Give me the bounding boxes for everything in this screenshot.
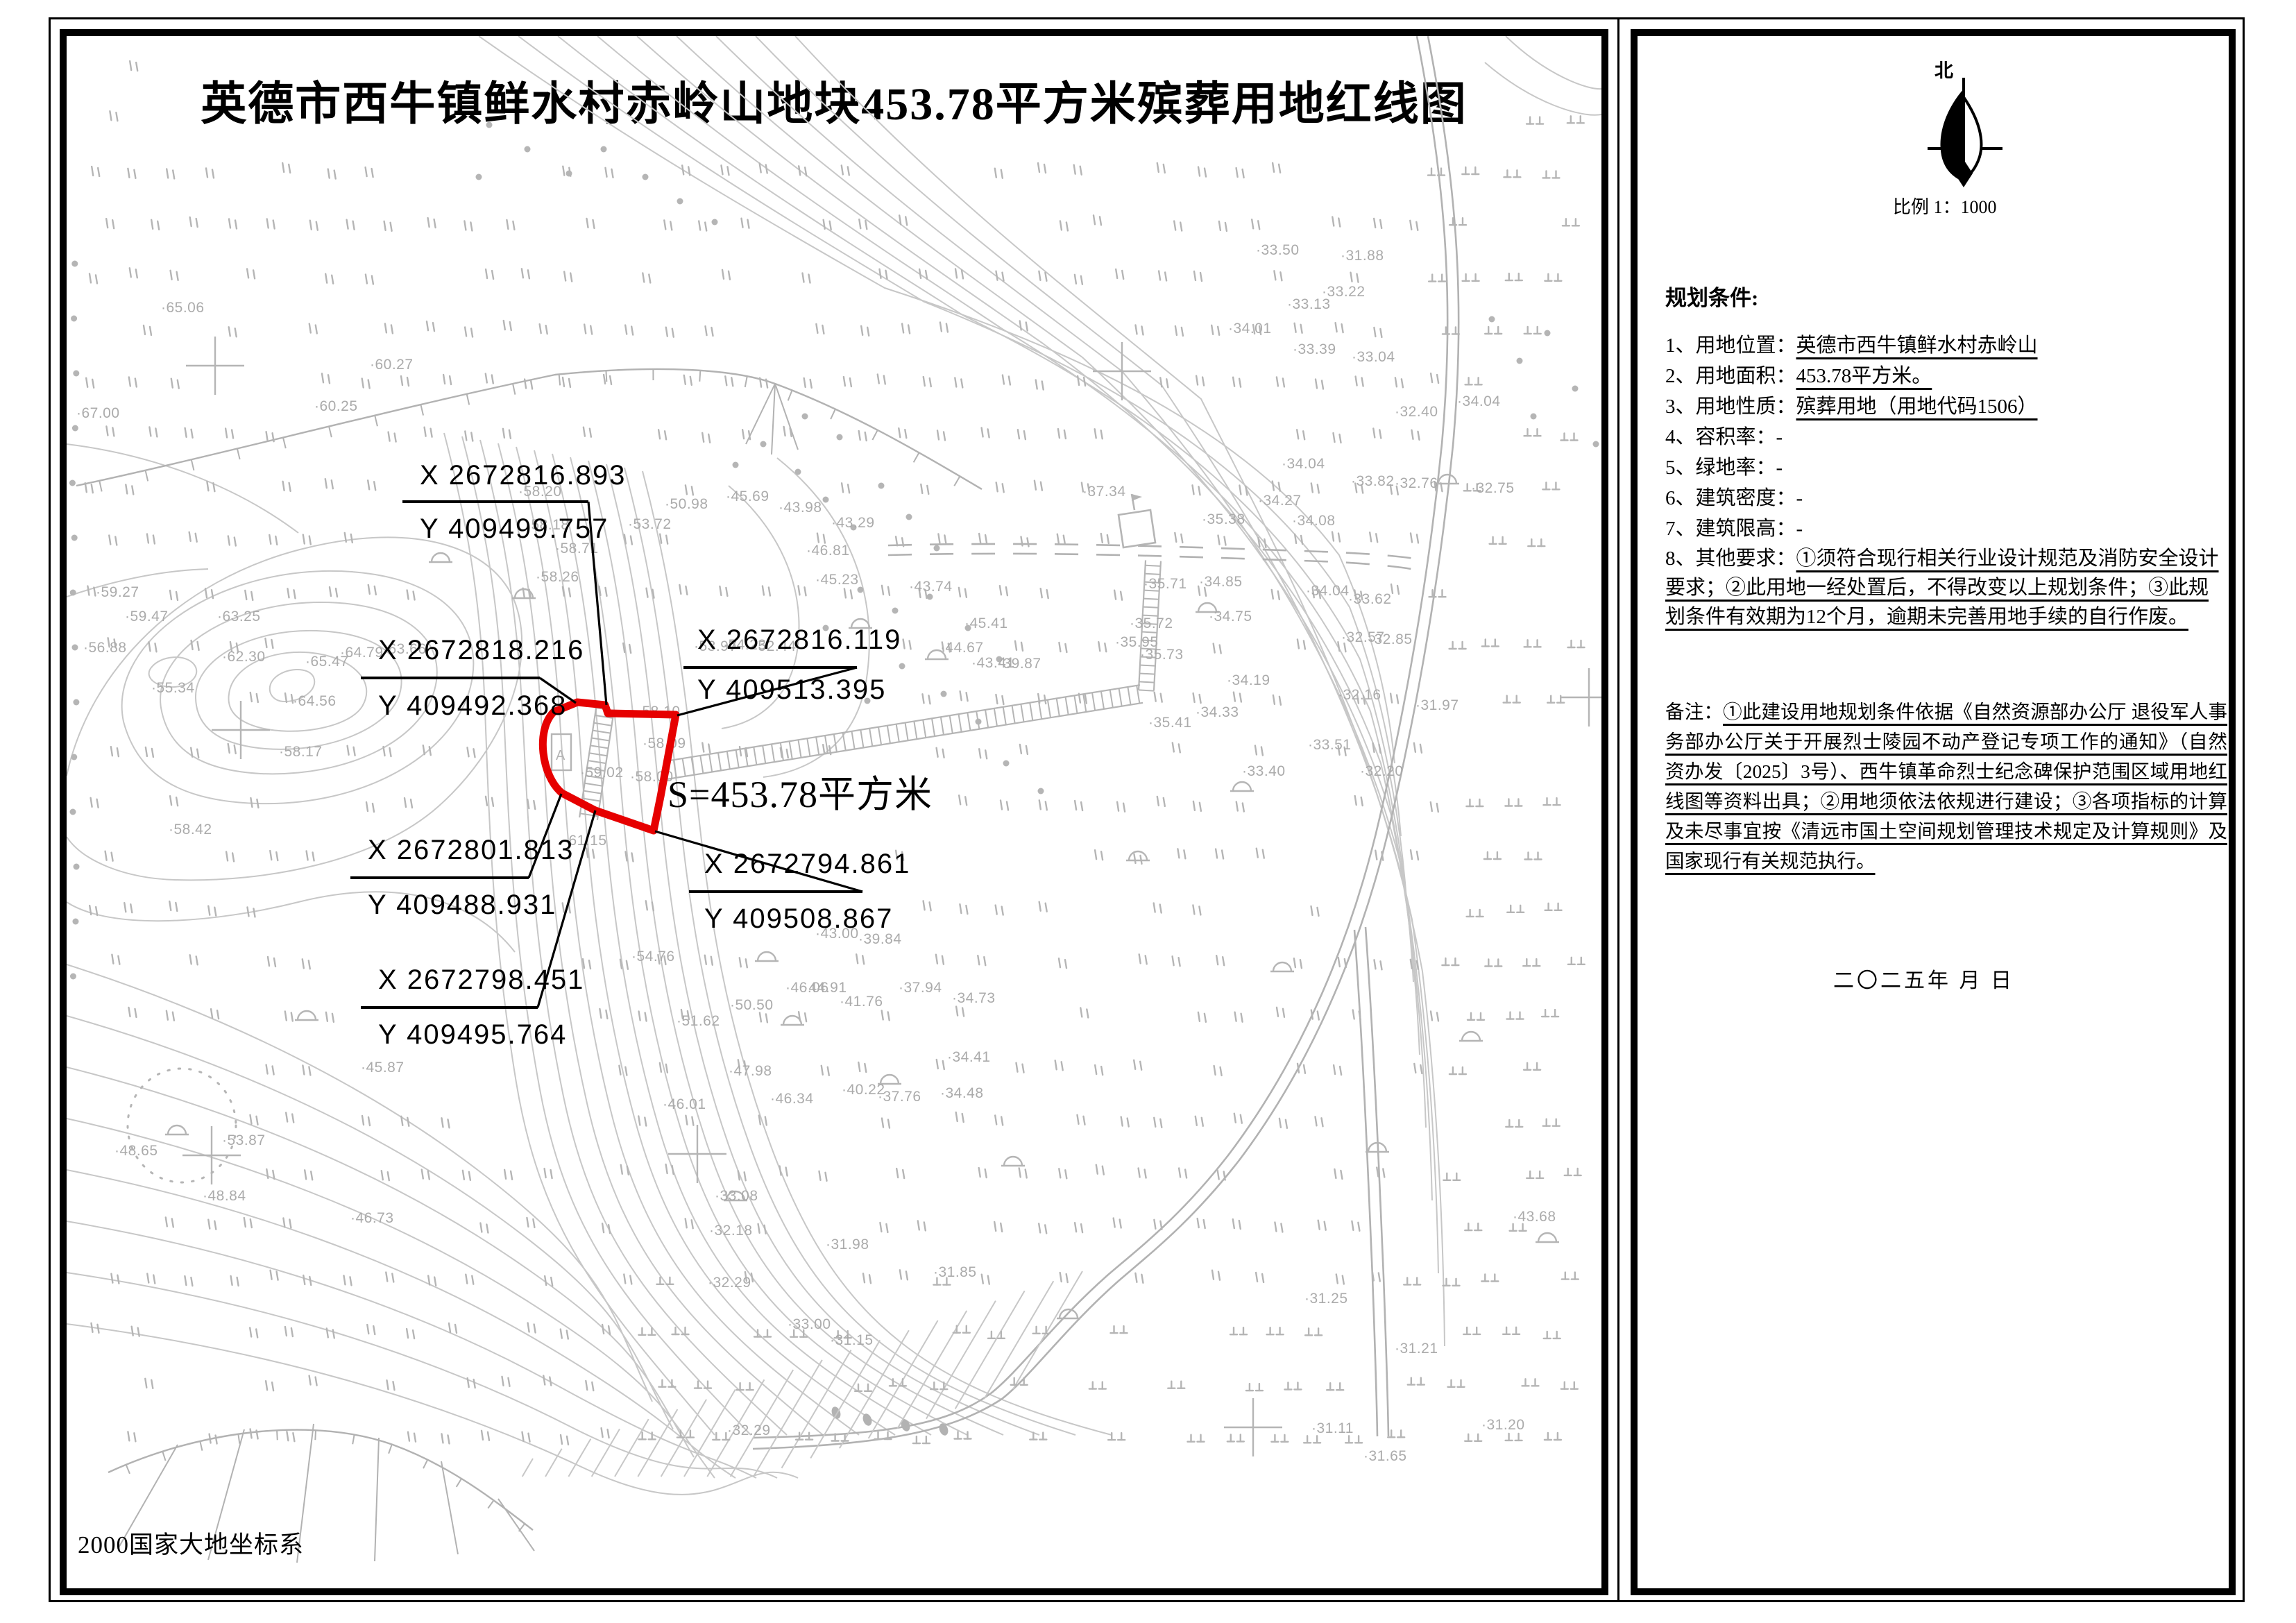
- grass-symbol: [325, 274, 333, 284]
- paddy-symbol: [1462, 167, 1479, 174]
- planning-item-label: 3、用地性质：: [1665, 396, 1796, 418]
- paddy-symbol: [1562, 1273, 1579, 1280]
- grass-symbol: [780, 1166, 788, 1176]
- paddy-symbol: [1543, 1119, 1560, 1126]
- grass-symbol: [1412, 430, 1420, 440]
- callout-y-value: Y 409488.931: [368, 890, 556, 920]
- spot-elevation: ·34.04: [1457, 393, 1501, 409]
- grass-symbol: [250, 1115, 258, 1125]
- grass-symbol: [1277, 377, 1284, 386]
- grass-symbol: [706, 326, 713, 336]
- grass-symbol: [959, 795, 967, 805]
- spot-elevation: ·58.09: [643, 736, 686, 751]
- grass-symbol: [1212, 1271, 1220, 1280]
- grass-symbol: [128, 169, 135, 178]
- paddy-symbol: [1524, 429, 1541, 436]
- grass-symbol: [1274, 271, 1282, 280]
- grass-symbol: [1095, 1065, 1103, 1075]
- grass-symbol: [229, 219, 237, 229]
- grass-symbol: [1373, 429, 1381, 439]
- grass-symbol: [996, 906, 1003, 915]
- spot-elevation: ·37.34: [1082, 484, 1126, 500]
- grass-symbol: [923, 694, 930, 704]
- callout-x-value: X 2672801.813: [368, 835, 574, 865]
- coordinate-callout: X 2672816.893Y 409499.757: [402, 460, 626, 705]
- grass-symbol: [1414, 743, 1422, 753]
- grass-symbol: [1039, 902, 1047, 912]
- grass-symbol: [1098, 642, 1106, 652]
- spot-elevation: ·33.08: [715, 1188, 758, 1204]
- grass-symbol: [1060, 221, 1068, 230]
- grass-symbol: [128, 1431, 135, 1441]
- grass-symbol: [679, 585, 687, 595]
- grass-symbol: [309, 324, 317, 334]
- grass-symbol: [937, 430, 945, 440]
- spot-elevation: ·45.23: [815, 572, 859, 588]
- grass-symbol: [938, 534, 946, 543]
- spot-elevation: ·32.85: [1369, 631, 1413, 647]
- grass-symbol: [1411, 533, 1418, 543]
- grass-symbol: [1336, 323, 1343, 332]
- grass-symbol: [283, 1218, 291, 1228]
- grass-symbol: [366, 275, 373, 284]
- grass-symbol: [362, 379, 370, 389]
- grass-symbol: [368, 480, 375, 490]
- grass-symbol: [231, 1276, 239, 1286]
- grass-symbol: [1391, 694, 1398, 704]
- paddy-symbol: [1466, 799, 1483, 806]
- grass-symbol: [385, 323, 393, 333]
- grass-symbol: [819, 1171, 827, 1181]
- paddy-symbol: [1267, 1327, 1284, 1334]
- grass-symbol: [1039, 1223, 1046, 1233]
- grass-symbol: [129, 377, 137, 387]
- grass-symbol: [1214, 1066, 1222, 1076]
- grass-symbol: [599, 1009, 607, 1019]
- grass-symbol: [1236, 802, 1244, 812]
- grass-symbol: [90, 273, 97, 283]
- grass-symbol: [1038, 694, 1046, 704]
- paddy-symbol: [913, 1436, 930, 1443]
- paddy-symbol: [1524, 1063, 1540, 1070]
- grass-symbol: [344, 1275, 352, 1285]
- spot-elevation: ·32.29: [727, 1422, 771, 1438]
- grass-symbol: [1173, 742, 1180, 752]
- grass-symbol: [899, 428, 906, 438]
- grass-symbol: [348, 746, 355, 756]
- grass-symbol: [384, 221, 392, 231]
- grass-symbol: [366, 802, 374, 812]
- grass-symbol: [1311, 483, 1319, 493]
- planning-item-label: 5、绿地率：: [1665, 457, 1776, 479]
- grass-symbol: [425, 427, 432, 437]
- grass-symbol: [1235, 1012, 1243, 1022]
- grass-symbol: [482, 1431, 489, 1441]
- spot-elevation: ·43.98: [779, 500, 822, 516]
- grass-symbol: [1019, 1168, 1027, 1178]
- grass-symbol: [725, 376, 733, 386]
- grass-symbol: [1277, 1008, 1284, 1017]
- grass-symbol: [1160, 377, 1168, 387]
- grass-symbol: [1157, 163, 1165, 173]
- grass-symbol: [464, 221, 472, 230]
- paddy-symbol: [1545, 1433, 1561, 1440]
- grass-symbol: [1074, 165, 1082, 175]
- grass-symbol: [624, 535, 632, 545]
- grass-symbol: [1020, 745, 1028, 754]
- grass-symbol: [742, 219, 749, 228]
- callout-x-value: X 2672818.216: [378, 635, 584, 665]
- paddy-symbol: [1542, 482, 1559, 489]
- grass-symbol: [111, 747, 119, 756]
- grass-symbol: [112, 955, 119, 965]
- spot-elevation: ·33.62: [1348, 591, 1392, 607]
- grass-symbol: [1318, 1221, 1326, 1230]
- spot-elevation: ·62.30: [222, 649, 266, 665]
- grass-symbol: [1410, 221, 1418, 230]
- grass-symbol: [921, 484, 928, 494]
- grass-symbol: [465, 432, 473, 441]
- grass-symbol: [1134, 1060, 1141, 1070]
- spot-elevation: ·37.94: [899, 980, 942, 996]
- paddy-symbol: [1468, 1013, 1484, 1020]
- grass-symbol: [1257, 849, 1264, 858]
- grass-symbol: [303, 535, 311, 545]
- grass-symbol: [1431, 802, 1438, 812]
- grass-symbol: [110, 111, 117, 121]
- grass-symbol: [903, 639, 911, 649]
- grass-symbol: [191, 748, 198, 758]
- grass-symbol: [442, 1118, 450, 1128]
- grass-symbol: [702, 743, 710, 753]
- grass-symbol: [1332, 532, 1340, 542]
- grass-symbol: [105, 851, 113, 861]
- grass-symbol: [1332, 217, 1340, 227]
- paddy-symbol: [1504, 696, 1520, 703]
- grass-symbol: [486, 374, 493, 384]
- grass-symbol: [1351, 273, 1359, 282]
- grass-symbol: [1039, 271, 1046, 281]
- planning-item-label: 4、容积率：: [1665, 426, 1776, 448]
- grass-symbol: [1000, 586, 1007, 595]
- grass-symbol: [285, 1327, 293, 1336]
- grass-symbol: [271, 1271, 278, 1280]
- planning-item-label: 6、建筑密度：: [1665, 487, 1796, 509]
- planning-item-value: 殡葬用地（用地代码1506）: [1796, 396, 2038, 418]
- grass-symbol: [362, 1116, 370, 1125]
- spot-elevation: ·64.79: [340, 645, 384, 661]
- planning-item: 7、建筑限高：-: [1665, 513, 2225, 544]
- spot-elevation: ·31.25: [1304, 1291, 1348, 1307]
- spot-elevation: ·33.00: [788, 1316, 831, 1332]
- spot-elevation: ·31.11: [1311, 1420, 1354, 1436]
- spot-elevation: ·44.67: [940, 640, 984, 656]
- grass-symbol: [326, 1012, 334, 1022]
- grass-symbol: [1411, 850, 1418, 860]
- paddy-symbol: [1188, 1435, 1205, 1442]
- grass-symbol: [1198, 1012, 1206, 1022]
- grass-symbol: [282, 163, 290, 173]
- grass-symbol: [1194, 271, 1202, 281]
- grass-symbol: [1297, 430, 1304, 439]
- grass-symbol: [185, 1276, 192, 1286]
- planning-item-value: -: [1796, 518, 1803, 540]
- grass-symbol: [527, 1218, 534, 1227]
- grass-symbol: [322, 373, 330, 383]
- spot-elevation: ·58.26: [536, 569, 579, 585]
- paddy-symbol: [1271, 1435, 1288, 1442]
- grass-symbol: [124, 903, 132, 912]
- grass-symbol: [130, 268, 137, 278]
- spot-elevation: ·53.72: [628, 516, 672, 532]
- grass-symbol: [937, 748, 944, 758]
- grass-symbol: [288, 588, 296, 598]
- grass-symbol: [937, 1060, 944, 1069]
- grass-symbol: [1352, 1221, 1359, 1231]
- grass-symbol: [979, 749, 987, 758]
- grass-symbol: [699, 221, 706, 231]
- spot-elevation: ·34.41: [947, 1049, 991, 1065]
- spot-elevation: ·33.50: [1256, 242, 1300, 258]
- grass-symbol: [1395, 377, 1403, 387]
- grass-symbol: [303, 959, 310, 969]
- grass-symbol: [902, 324, 910, 334]
- grass-symbol: [211, 1009, 219, 1019]
- grass-symbol: [146, 747, 153, 757]
- grass-symbol: [1173, 956, 1180, 966]
- paddy-symbol: [1449, 1067, 1466, 1074]
- grass-symbol: [1018, 430, 1026, 439]
- grass-symbol: [170, 796, 178, 806]
- grass-symbol: [149, 427, 157, 436]
- grass-symbol: [1121, 1117, 1129, 1127]
- grass-symbol: [643, 273, 650, 283]
- grass-symbol: [1374, 328, 1381, 337]
- grass-symbol: [504, 1170, 512, 1180]
- paddy-symbol: [1227, 1434, 1244, 1441]
- grass-symbol: [955, 269, 963, 278]
- planning-item: 1、用地位置：英德市西牛镇鲜水村赤岭山: [1665, 330, 2225, 361]
- grass-symbol: [1193, 693, 1201, 703]
- paddy-symbol: [1168, 1382, 1184, 1388]
- spot-elevation: ·51.62: [677, 1013, 720, 1029]
- grass-symbol: [1095, 850, 1103, 860]
- grass-symbol: [147, 1274, 155, 1284]
- grass-symbol: [842, 483, 849, 493]
- grass-symbol: [387, 1380, 395, 1390]
- paddy-symbol: [1522, 1379, 1539, 1386]
- spot-elevation: ·32.76: [1395, 475, 1438, 491]
- grass-symbol: [145, 1379, 153, 1388]
- callout-y-value: Y 409513.395: [697, 674, 886, 705]
- grass-symbol: [106, 219, 114, 228]
- spot-elevation: ·32.16: [1338, 687, 1381, 703]
- grass-symbol: [1059, 1169, 1066, 1178]
- grass-symbol: [740, 958, 747, 967]
- spot-elevation: ·34.19: [1227, 672, 1270, 688]
- grass-symbol: [407, 1329, 414, 1339]
- grass-symbol: [367, 1325, 375, 1334]
- grass-symbol: [1316, 380, 1323, 389]
- grass-symbol: [599, 586, 607, 596]
- grass-symbol: [423, 745, 431, 755]
- spot-elevation: ·46.73: [350, 1210, 394, 1226]
- grass-symbol: [1316, 1116, 1323, 1126]
- grass-symbol: [996, 482, 1004, 492]
- spot-elevation: ·31.85: [933, 1264, 977, 1280]
- grass-symbol: [285, 1012, 293, 1021]
- grass-symbol: [443, 375, 451, 384]
- grass-symbol: [228, 536, 236, 546]
- grass-symbol: [1233, 377, 1241, 387]
- grass-symbol: [799, 1012, 806, 1021]
- grass-symbol: [1060, 1273, 1068, 1282]
- grass-symbol: [1179, 1169, 1187, 1178]
- panel-divider: [1617, 17, 1619, 1602]
- paddy-symbol: [1467, 910, 1483, 917]
- spot-elevation: ·59.02: [580, 765, 624, 781]
- grass-symbol: [621, 1165, 629, 1175]
- spot-elevation: ·31.98: [826, 1237, 869, 1252]
- grass-symbol: [959, 588, 967, 597]
- spot-elevation: ·43.68: [1513, 1209, 1556, 1225]
- planning-item: 8、其他要求：①须符合现行相关行业设计规范及消防安全设计要求；②此用地一经处置后…: [1665, 544, 2225, 631]
- grass-symbol: [250, 1328, 257, 1338]
- grass-symbol: [1356, 377, 1363, 386]
- grass-symbol: [169, 901, 177, 911]
- spot-elevation: ·50.98: [665, 496, 708, 512]
- grass-symbol: [151, 220, 159, 230]
- spot-elevation: ·60.27: [370, 357, 414, 373]
- paddy-symbol: [1485, 327, 1502, 334]
- grass-symbol: [286, 1113, 294, 1123]
- grass-symbol: [844, 377, 851, 386]
- grass-symbol: [604, 375, 611, 384]
- grass-symbol: [247, 269, 255, 278]
- grass-symbol: [86, 378, 94, 388]
- paddy-symbol: [1465, 1434, 1481, 1441]
- grass-symbol: [111, 1274, 119, 1284]
- grass-symbol: [660, 534, 667, 544]
- grass-symbol: [1298, 639, 1305, 649]
- grass-symbol: [1295, 323, 1302, 333]
- grass-symbol: [1198, 1218, 1205, 1228]
- grass-symbol: [287, 1431, 294, 1441]
- grass-symbol: [858, 1062, 866, 1072]
- paddy-symbol: [1429, 590, 1446, 597]
- grass-symbol: [686, 1116, 693, 1125]
- spot-elevation: ·37.76: [878, 1089, 921, 1105]
- grass-symbol: [428, 218, 436, 228]
- grass-symbol: [722, 165, 729, 175]
- grass-symbol: [171, 379, 179, 389]
- grass-symbol: [1273, 163, 1280, 173]
- grass-symbol: [1294, 958, 1302, 968]
- grass-symbol: [1214, 644, 1221, 654]
- grass-symbol: [996, 695, 1003, 704]
- paddy-symbol: [988, 1332, 1005, 1339]
- planning-conditions-list: 1、用地位置：英德市西牛镇鲜水村赤岭山2、用地面积：453.78平方米。3、用地…: [1665, 330, 2225, 631]
- planning-item: 2、用地面积：453.78平方米。: [1665, 361, 2225, 391]
- coordinate-callout: X 2672818.216Y 409492.368: [361, 635, 584, 721]
- grass-symbol: [586, 849, 594, 858]
- paddy-symbol: [1510, 1224, 1527, 1231]
- spot-elevation: ·43.74: [909, 579, 953, 595]
- info-panel: 北 比例 1：1000 规划条件: 1、用地位置：英德市西牛镇鲜水村赤岭山2、用…: [1631, 29, 2236, 1595]
- spot-elevation: ·34.01: [1228, 321, 1272, 337]
- grass-symbol: [269, 535, 277, 545]
- paddy-symbol: [1563, 219, 1579, 226]
- spot-elevation: ·60.25: [314, 398, 358, 414]
- scale-label: 比例 1：1000: [1893, 193, 1997, 219]
- grass-symbol: [900, 1270, 908, 1280]
- grass-symbol: [924, 377, 931, 386]
- spot-elevation: ·31.15: [830, 1332, 874, 1348]
- grass-symbol: [705, 955, 713, 965]
- spot-elevation: ·45.69: [726, 488, 769, 504]
- spot-elevation: ·32.75: [1471, 480, 1515, 496]
- paddy-symbol: [1525, 853, 1542, 860]
- grass-symbol: [1136, 325, 1143, 334]
- spot-elevation: ·63.25: [217, 609, 261, 624]
- planning-item-label: 7、建筑限高：: [1665, 518, 1796, 540]
- grass-symbol: [918, 1221, 926, 1230]
- grass-symbol: [1338, 958, 1346, 967]
- grass-symbol: [266, 1065, 274, 1075]
- paddy-symbol: [1230, 1327, 1247, 1334]
- callout-y-value: Y 409492.368: [378, 690, 567, 721]
- paddy-symbol: [1484, 852, 1501, 859]
- grass-symbol: [1279, 1119, 1287, 1128]
- paddy-symbol: [1545, 274, 1561, 281]
- grass-symbol: [1058, 429, 1066, 439]
- notes-block: 备注：①此建设用地规划条件依据《自然资源部办公厅 退役军人事务部办公厅关于开展烈…: [1665, 697, 2227, 876]
- callout-x-value: X 2672794.861: [704, 849, 910, 879]
- grass-symbol: [270, 851, 278, 860]
- grass-symbol: [325, 479, 333, 488]
- paddy-symbol: [1504, 170, 1520, 177]
- paddy-symbol: [1505, 799, 1522, 806]
- paddy-symbol: [1108, 1433, 1125, 1440]
- grass-symbol: [940, 323, 948, 332]
- grass-symbol: [328, 169, 336, 179]
- spot-elevation: ·65.06: [161, 300, 205, 316]
- planning-item-label: 8、其他要求：: [1665, 547, 1796, 570]
- grass-symbol: [1196, 376, 1204, 386]
- spot-elevation: ·45.87: [361, 1060, 405, 1076]
- grass-symbol: [899, 215, 907, 225]
- grass-symbol: [1020, 321, 1028, 331]
- spot-elevation: ·32.20: [1360, 763, 1404, 779]
- coordinate-system-label: 2000国家大地坐标系: [78, 1525, 304, 1561]
- paddy-symbol: [1449, 642, 1466, 649]
- grass-symbol: [1273, 695, 1281, 705]
- paddy-symbol: [1246, 1384, 1263, 1391]
- grass-symbol: [226, 851, 234, 861]
- grass-symbol: [584, 427, 591, 437]
- grass-symbol: [283, 482, 291, 491]
- grass-symbol: [87, 586, 95, 596]
- paddy-symbol: [1506, 1120, 1522, 1127]
- grass-symbol: [465, 328, 473, 337]
- paddy-symbol: [1304, 1436, 1320, 1443]
- grass-symbol: [384, 747, 391, 756]
- paddy-symbol: [1507, 1012, 1524, 1019]
- grass-symbol: [702, 433, 710, 443]
- grass-symbol: [664, 220, 672, 230]
- grass-symbol: [936, 955, 944, 965]
- grass-symbol: [896, 1169, 904, 1178]
